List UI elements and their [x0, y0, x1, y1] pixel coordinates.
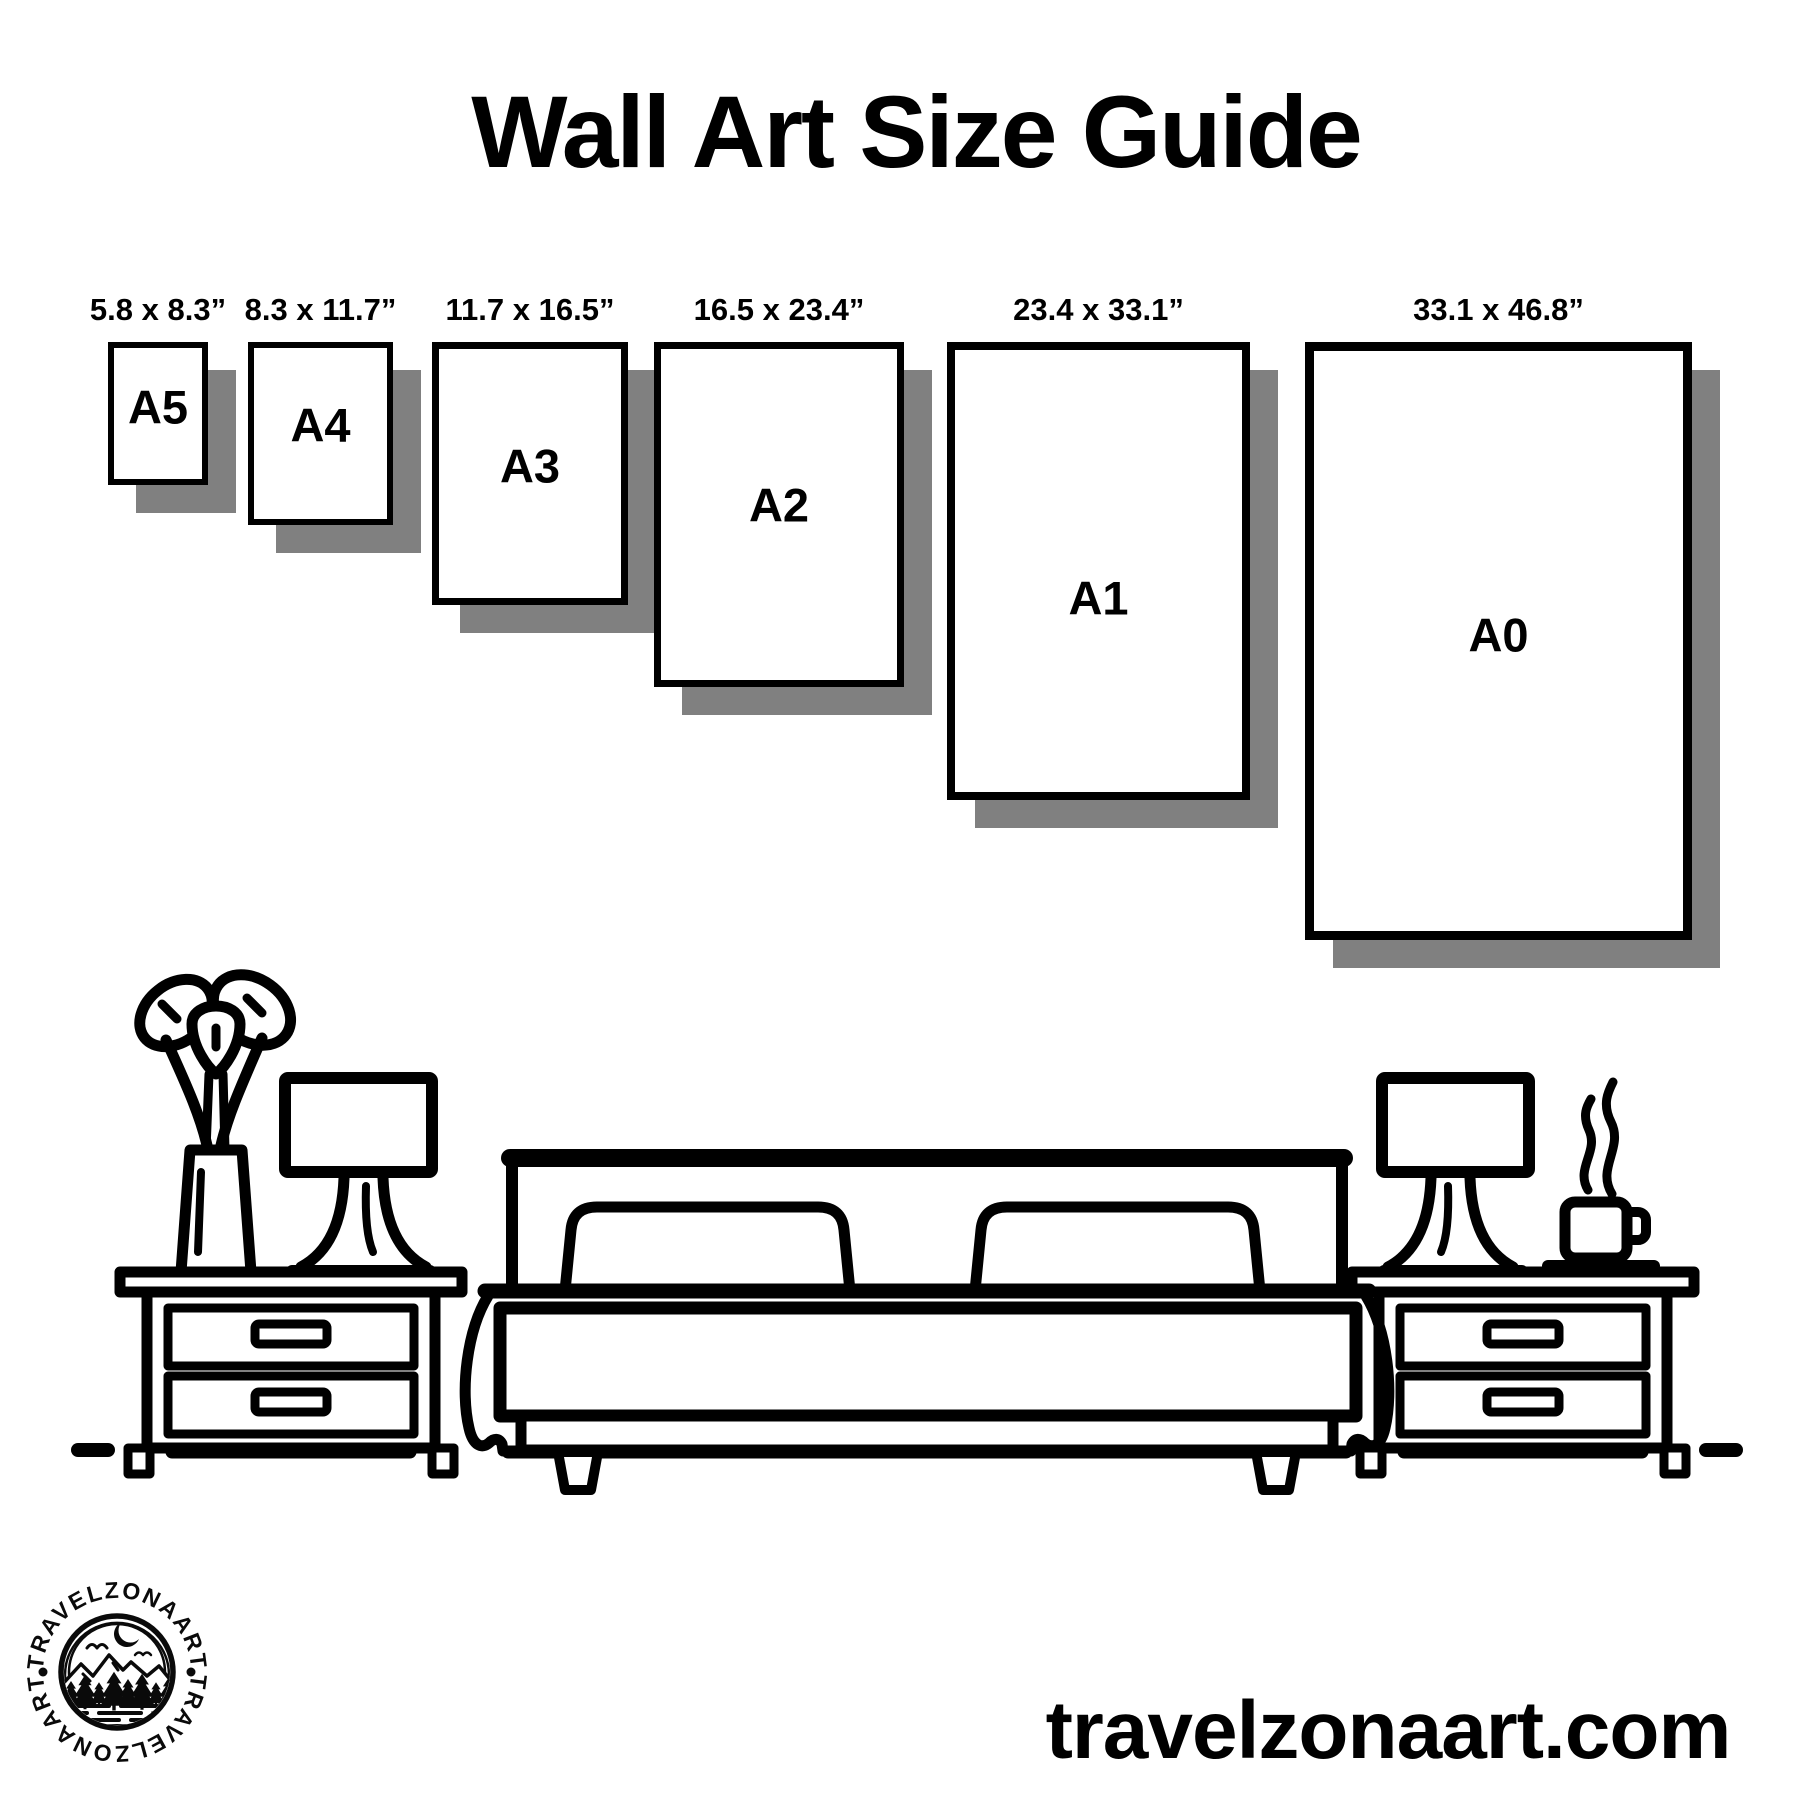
size-guide-poster: Wall Art Size Guide 5.8 x 8.3” A5 8.3 x …: [0, 0, 1800, 1800]
table-lamp-icon: [1382, 1078, 1529, 1271]
table-lamp-icon: [285, 1078, 432, 1271]
nightstand-icon: [120, 1272, 462, 1474]
coffee-mug-icon: [1548, 1082, 1654, 1266]
nightstand-icon: [1352, 1272, 1694, 1474]
logo-badge: TRAVELZONAART TRAVELZONAART: [25, 1564, 209, 1782]
logo-dot-right: [187, 1668, 196, 1677]
logo-emblem: TRAVELZONAART TRAVELZONAART: [25, 1564, 209, 1782]
bedroom-scene: [0, 0, 1800, 1800]
bed-icon: [465, 1155, 1389, 1490]
plant-icon: [127, 960, 305, 1272]
website-url: travelzonaart.com: [1046, 1684, 1731, 1778]
logo-dot-left: [39, 1668, 48, 1677]
